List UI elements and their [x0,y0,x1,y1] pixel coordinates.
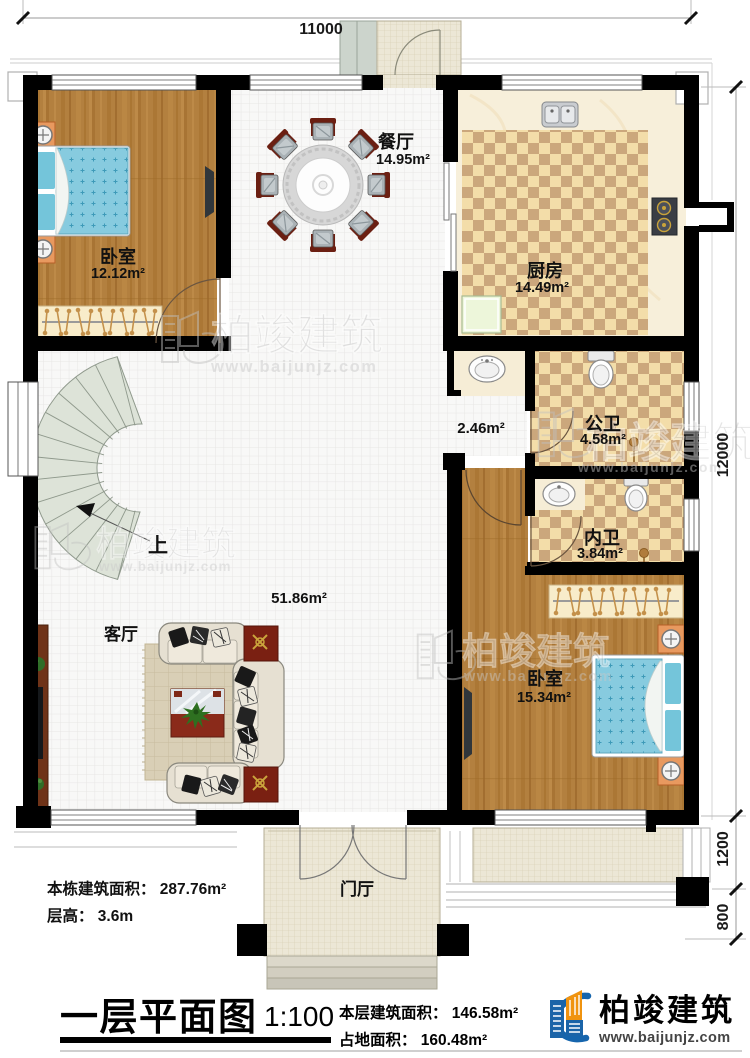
svg-text:51.86m²: 51.86m² [271,590,327,607]
svg-text:厨房: 厨房 [527,260,563,281]
svg-text:4.58m²: 4.58m² [580,432,626,448]
svg-text:柏竣建筑: 柏竣建筑 [462,630,610,672]
svg-text:内卫: 内卫 [584,527,620,548]
svg-text:客厅: 客厅 [103,624,138,644]
svg-text:卧室: 卧室 [100,246,136,267]
svg-text:门厅: 门厅 [340,879,374,899]
svg-text:1200: 1200 [715,831,732,867]
svg-text:800: 800 [715,904,732,931]
svg-text:3.84m²: 3.84m² [577,546,623,562]
svg-text:上: 上 [148,534,168,557]
svg-text:15.34m²: 15.34m² [517,690,571,706]
svg-text:14.95m²: 14.95m² [376,152,430,168]
svg-text:公卫: 公卫 [585,414,621,434]
svg-text:1:100: 1:100 [264,1001,334,1032]
svg-text:14.49m²: 14.49m² [515,280,569,296]
svg-text:www.baijunjz.com: www.baijunjz.com [210,358,377,376]
svg-text:餐厅: 餐厅 [377,131,414,152]
svg-text:12000: 12000 [715,433,732,478]
svg-text:占地面积： 160.48m²: 占地面积： 160.48m² [339,1030,487,1049]
svg-text:www.baijunjz.com: www.baijunjz.com [577,459,723,475]
svg-text:一层平面图: 一层平面图 [60,997,258,1039]
svg-text:本栋建筑面积： 287.76m²: 本栋建筑面积： 287.76m² [47,879,226,898]
svg-text:柏竣建筑: 柏竣建筑 [599,993,735,1028]
svg-text:2.46m²: 2.46m² [457,420,505,437]
svg-text:卧室: 卧室 [527,668,563,689]
svg-text:12.12m²: 12.12m² [91,266,145,282]
svg-text:11000: 11000 [299,21,343,38]
svg-text:www.baijunjz.com: www.baijunjz.com [98,559,232,574]
svg-text:本层建筑面积： 146.58m²: 本层建筑面积： 146.58m² [339,1003,518,1022]
svg-text:层高： 3.6m: 层高： 3.6m [47,906,133,925]
svg-text:www.baijunjz.com: www.baijunjz.com [598,1030,731,1046]
svg-text:柏竣建筑: 柏竣建筑 [211,312,383,360]
